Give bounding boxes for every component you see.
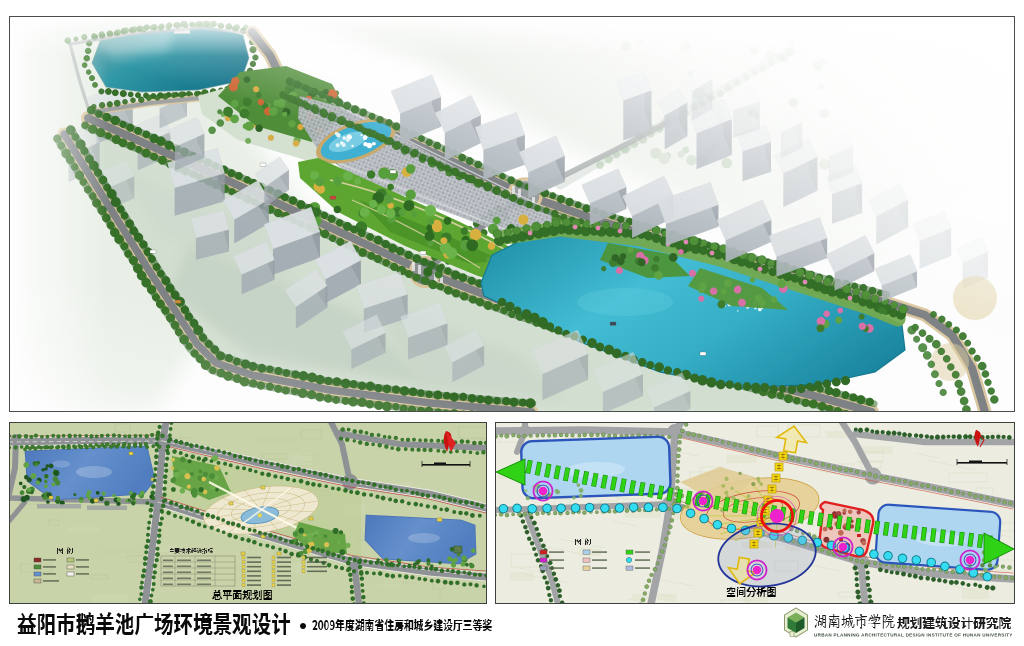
svg-text:URBAN PLANNING ARCHITECTURAL D: URBAN PLANNING ARCHITECTURAL DESIGN INST… [814, 633, 1013, 638]
